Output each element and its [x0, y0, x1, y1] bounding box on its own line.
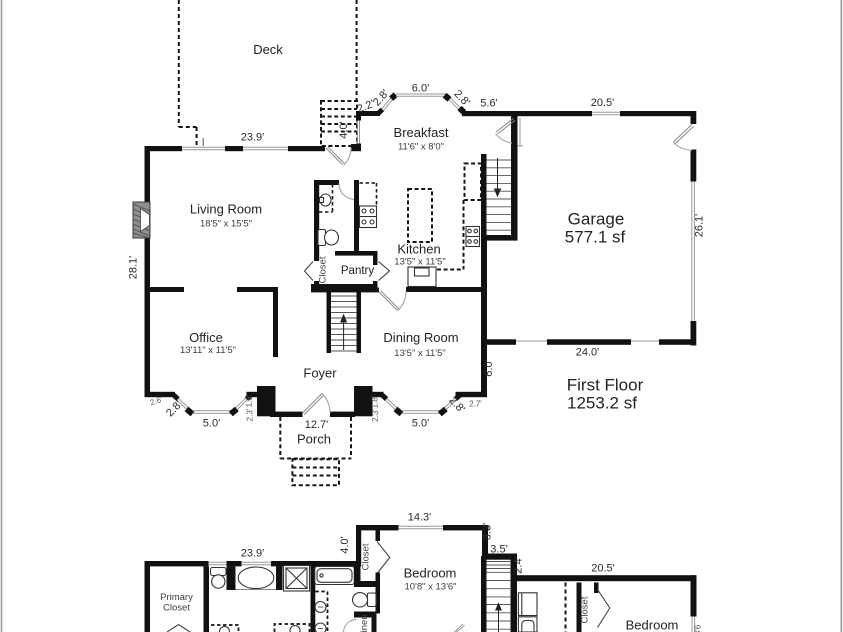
svg-text:23.9': 23.9'	[241, 548, 265, 560]
svg-text:Closet: Closet	[163, 603, 190, 614]
svg-text:1.8': 1.8'	[371, 395, 380, 408]
svg-text:4.0': 4.0'	[339, 536, 351, 553]
svg-text:First Floor: First Floor	[567, 376, 644, 395]
svg-text:28.1': 28.1'	[128, 256, 140, 280]
svg-text:20.5': 20.5'	[591, 97, 615, 109]
svg-text:Breakfast: Breakfast	[394, 125, 449, 140]
svg-text:24.0': 24.0'	[576, 347, 600, 359]
svg-text:3'6: 3'6	[694, 624, 703, 632]
svg-text:5.0': 5.0'	[203, 418, 220, 430]
svg-text:Dining Room: Dining Room	[383, 330, 458, 345]
svg-text:23.9': 23.9'	[241, 132, 265, 144]
svg-text:Bedroom: Bedroom	[626, 618, 679, 632]
svg-text:Closet: Closet	[318, 256, 329, 283]
svg-text:3.3': 3.3'	[482, 523, 494, 540]
svg-text:13'5" x 11'5": 13'5" x 11'5"	[394, 348, 445, 359]
svg-text:Foyer: Foyer	[303, 366, 337, 381]
svg-text:11'6" x 8'0": 11'6" x 8'0"	[398, 142, 444, 153]
svg-text:Porch: Porch	[297, 432, 331, 447]
svg-text:Pantry: Pantry	[341, 265, 374, 277]
svg-text:2.7': 2.7'	[469, 400, 482, 409]
svg-text:18'5" x 15'5": 18'5" x 15'5"	[200, 219, 252, 230]
svg-text:Bedroom: Bedroom	[404, 566, 457, 581]
svg-text:Office: Office	[189, 330, 223, 345]
svg-text:Closet: Closet	[580, 596, 591, 623]
svg-text:577.1 sf: 577.1 sf	[565, 228, 626, 247]
svg-text:13'5" x 11'5": 13'5" x 11'5"	[394, 257, 445, 268]
svg-text:12.7': 12.7'	[305, 419, 329, 431]
svg-text:6.0': 6.0'	[412, 83, 429, 95]
svg-text:Kitchen: Kitchen	[397, 242, 440, 257]
svg-text:5.6': 5.6'	[480, 98, 497, 110]
svg-text:20.5': 20.5'	[591, 563, 615, 575]
svg-text:14.3': 14.3'	[408, 512, 432, 524]
svg-text:10'8" x 13'6": 10'8" x 13'6"	[404, 582, 456, 593]
svg-text:Living Room: Living Room	[190, 202, 262, 217]
svg-text:Deck: Deck	[253, 42, 283, 57]
svg-text:Garage: Garage	[568, 210, 625, 229]
svg-text:13'11" x 11'5": 13'11" x 11'5"	[180, 345, 236, 356]
svg-text:26.1': 26.1'	[694, 214, 706, 238]
svg-text:Linen: Linen	[359, 614, 370, 632]
svg-text:2.3': 2.3'	[246, 408, 255, 421]
svg-text:4.0': 4.0'	[338, 121, 350, 138]
svg-text:Primary: Primary	[160, 592, 193, 603]
svg-text:5.0': 5.0'	[412, 418, 429, 430]
svg-text:2.4': 2.4'	[513, 556, 525, 573]
svg-text:1.8': 1.8'	[245, 394, 254, 407]
svg-text:2.3': 2.3'	[371, 409, 380, 422]
svg-text:6.0': 6.0'	[483, 359, 495, 376]
svg-text:1253.2 sf: 1253.2 sf	[567, 394, 637, 413]
svg-text:Closet: Closet	[361, 543, 372, 570]
